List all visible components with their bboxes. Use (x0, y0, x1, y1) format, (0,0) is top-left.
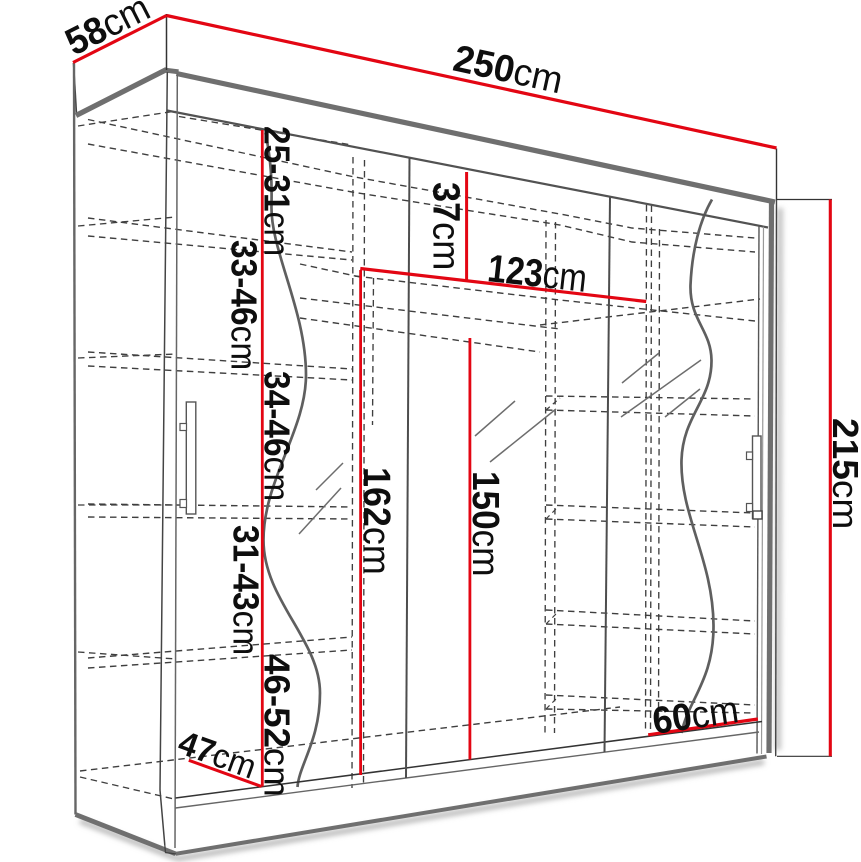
svg-text:33-46cm: 33-46cm (223, 240, 262, 370)
svg-text:25-31cm: 25-31cm (256, 126, 295, 256)
svg-text:58cm: 58cm (58, 0, 156, 63)
svg-text:31-43cm: 31-43cm (225, 525, 264, 655)
svg-text:215cm: 215cm (825, 418, 861, 529)
svg-text:150cm: 150cm (465, 471, 508, 576)
svg-text:250cm: 250cm (450, 36, 567, 101)
svg-text:123cm: 123cm (486, 246, 590, 301)
svg-text:60cm: 60cm (650, 688, 742, 742)
svg-text:47cm: 47cm (173, 724, 261, 787)
svg-text:34-46cm: 34-46cm (256, 371, 295, 501)
svg-text:46-52cm: 46-52cm (257, 654, 298, 797)
svg-text:162cm: 162cm (356, 467, 398, 575)
svg-text:37cm: 37cm (425, 182, 468, 270)
